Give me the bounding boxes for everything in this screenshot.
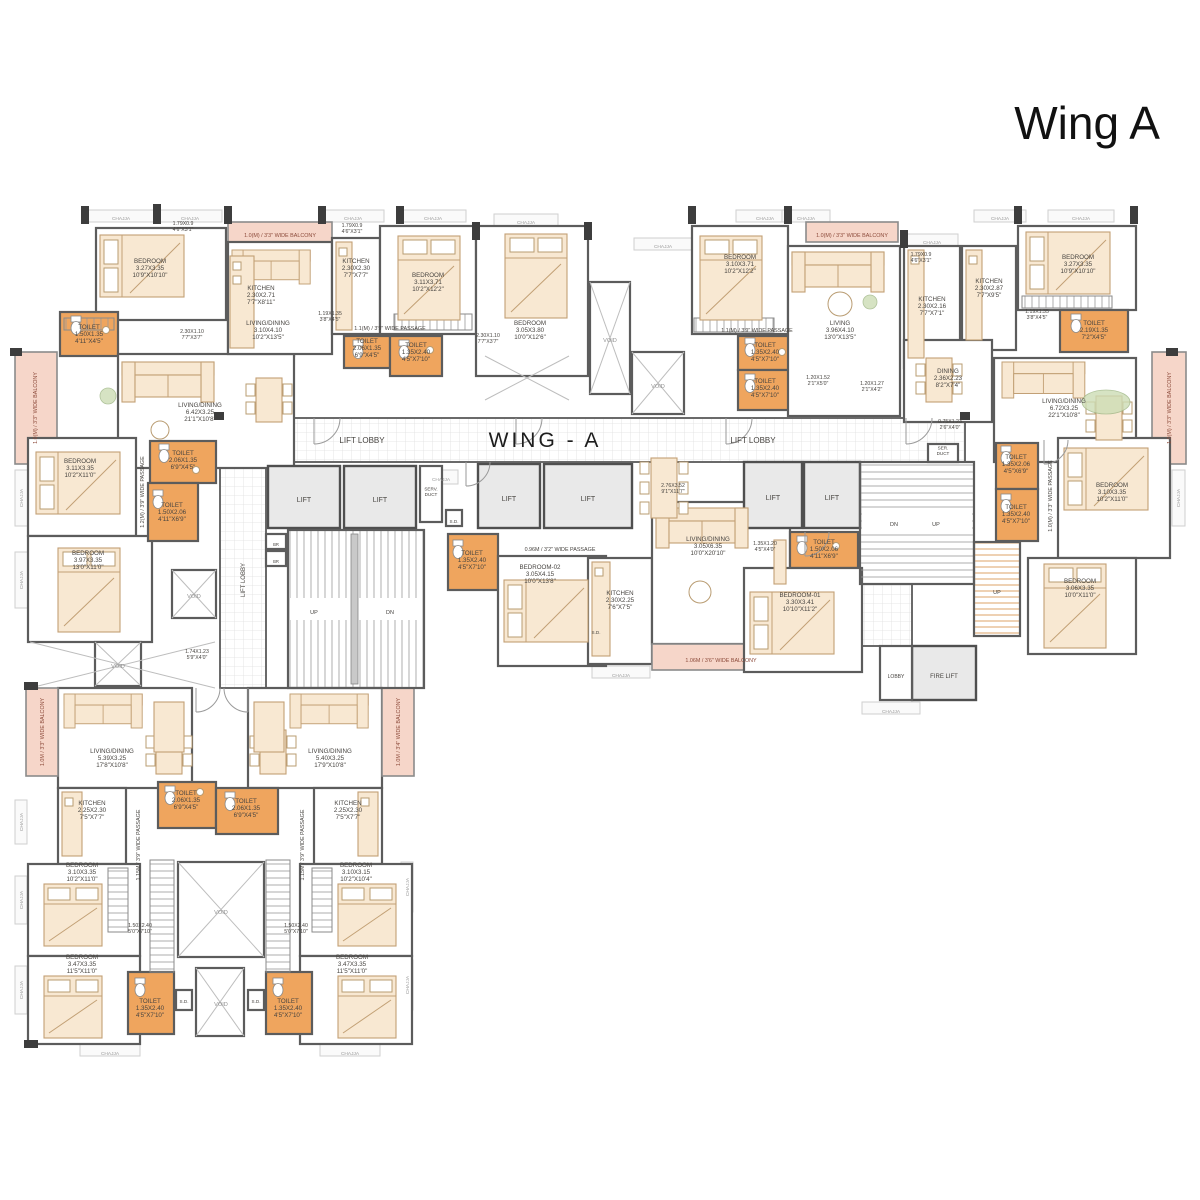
plan-label: TOILET1.35X2.404'5"X7'10"	[402, 342, 431, 363]
plan-label: BEDROOM3.10X3.3510'2"X11'0"	[1096, 482, 1128, 503]
plan-label: VOID	[111, 664, 125, 670]
plan-label: CHAJJA	[882, 709, 901, 715]
plan-label: TOILET1.35X2.404'5"X7'10"	[136, 998, 165, 1019]
plan-label: DN	[386, 610, 394, 616]
plan-label: TOILET2.06X1.356'9"X4'5"	[353, 338, 382, 359]
plan-label: CHAJJA	[405, 975, 411, 994]
plan-label: BEDROOM3.97X3.3513'0"X11'0"	[72, 550, 104, 571]
plan-label: BEDROOM3.47X3.3511'5"X11'0"	[66, 954, 98, 975]
plan-label: CHAJJA	[405, 877, 411, 896]
plan-label: S.D.	[592, 630, 601, 635]
plan-label: BEDROOM3.11X3.7110'2"X12'2"	[412, 272, 444, 293]
plan-label: CHAJJA	[344, 216, 363, 222]
plan-label: 1.1(M) / 3'9" WIDE PASSAGE	[721, 328, 793, 334]
plan-label: 1.0(M) / 3'3" WIDE BALCONY	[244, 233, 316, 239]
plan-label: 0.75X1.232'6"X4'0"	[938, 419, 962, 431]
plan-label: TOILET2.06X1.356'9"X4'5"	[169, 450, 198, 471]
plan-label: 1.19X1.353'8"X4'5"	[1025, 309, 1049, 321]
plan-label: TOILET1.50X1.354'11"X4'5"	[75, 324, 104, 345]
plan-label: LIFT LOBBY	[241, 563, 247, 597]
plan-label: CHAJJA	[991, 216, 1010, 222]
plan-label: BR	[273, 559, 279, 564]
plan-label: CHAJJA	[101, 1051, 120, 1057]
plan-label: LIFT	[581, 496, 596, 503]
plan-label: CHAJJA	[341, 1051, 360, 1057]
plan-label: 2.30X1.107'7"X3'7"	[180, 329, 204, 341]
plan-label: CHAJJA	[923, 240, 942, 246]
plan-label: 1.0(M) / 3'3" WIDE BALCONY	[816, 233, 888, 239]
plan-label: 1.79X0.94'6"X3'1"	[911, 252, 932, 264]
plan-label: 1.0M / 3'3" WIDE BALCONY	[40, 697, 46, 766]
plan-label: BEDROOM3.06X3.3510'0"X11'0"	[1064, 578, 1096, 599]
plan-label: 1.19X1.353'8"X4'5"	[318, 311, 342, 323]
plan-label: 1.79X0.94'6"X3'1"	[173, 221, 194, 233]
plan-label: TOILET1.35X2.404'5"X7'10"	[751, 342, 780, 363]
plan-label: 2.30X1.107'7"X3'7"	[476, 333, 500, 345]
plan-label: CHAJJA	[612, 673, 631, 679]
plan-label: 1.1(M) / 3'9" WIDE PASSAGE	[354, 326, 426, 332]
plan-label: LOBBY	[888, 674, 905, 680]
plan-label: 1.20X1.272'1"X4'2"	[860, 381, 884, 393]
plan-label: TOILET1.35X2.404'5"X7'10"	[458, 550, 487, 571]
plan-label: DINING2.36X2.238'2"X7'4"	[934, 368, 963, 389]
plan-label: TOILET2.19X1.357'2"X4'5"	[1080, 320, 1109, 341]
plan-label: VOID	[214, 910, 228, 916]
plan-label: 1.79X0.94'6"X3'1"	[342, 223, 363, 235]
plan-label: CHAJJA	[432, 477, 451, 483]
plan-label: BEDROOM3.47X3.3511'5"X11'0"	[336, 954, 368, 975]
plan-label: LIFT	[825, 495, 840, 502]
plan-label: S.D.	[450, 519, 459, 524]
plan-label: TOILET1.50X2.064'11"X6'9"	[158, 502, 187, 523]
plan-label: 1.15M / 3'9" WIDE PASSAGE	[136, 809, 142, 880]
floor-plan-drawing: WING - ALIFT LOBBYLIFT LOBBYLIFT LOBBYLI…	[0, 0, 1200, 1200]
plan-label: TOILET1.35X2.404'5"X7'10"	[751, 378, 780, 399]
plan-label: TOILET1.35X2.404'5"X7'10"	[274, 998, 303, 1019]
plan-label: LIFT	[297, 497, 312, 504]
plan-label: BEDROOM3.10X3.1510'2"X10'4"	[340, 862, 372, 883]
plan-label: 2.76X3.529'1"X11'7"	[661, 483, 685, 495]
plan-label: BEDROOM3.05X3.8010'0"X12'6"	[514, 320, 546, 341]
plan-label: BR	[273, 542, 279, 547]
plan-label: KITCHEN2.30X2.257'6"X7'5"	[606, 590, 635, 611]
plan-label: LIFT	[373, 497, 388, 504]
plan-label: BEDROOM3.27X3.3510'9"X10'10"	[1061, 254, 1096, 275]
plan-label: UP	[993, 590, 1001, 596]
plan-label: CHAJJA	[654, 244, 673, 250]
plan-label: SERV.DUCT	[424, 486, 437, 497]
plan-label: LIFT LOBBY	[730, 436, 776, 445]
plan-label: KITCHEN2.30X2.167'7"X7'1"	[918, 296, 947, 317]
plan-label: S.D.	[252, 999, 261, 1004]
plan-label: TOILET1.50X2.064'11"X6'9"	[810, 539, 839, 560]
plan-label: CHAJJA	[19, 812, 25, 831]
plan-label: LIFT LOBBY	[339, 436, 385, 445]
plan-label: CHAJJA	[797, 216, 816, 222]
plan-label: CHAJJA	[181, 216, 200, 222]
plan-label: CHAJJA	[19, 488, 25, 507]
plan-label: TOILET1.35X2.064'5"X6'9"	[1002, 454, 1031, 475]
plan-label: CHAJJA	[19, 570, 25, 589]
plan-label: VOID	[651, 384, 665, 390]
plan-label: CHAJJA	[424, 216, 443, 222]
plan-label: FIRE LIFT	[930, 674, 958, 680]
plan-label: CHAJJA	[1072, 216, 1091, 222]
plan-label: 1.15M / 3'9" WIDE PASSAGE	[300, 809, 306, 880]
plan-label: VOID	[603, 338, 617, 344]
plan-label: 1.50X2.405'0"X7'10"	[128, 923, 152, 935]
floor-plan-page: Wing A	[0, 0, 1200, 1200]
plan-label: LIFT	[766, 495, 781, 502]
plan-label: S.D.	[180, 999, 189, 1004]
plan-label: TOILET2.06X1.356'9"X4'5"	[232, 798, 261, 819]
plan-label: CHAJJA	[517, 220, 536, 226]
plan-label: TOILET2.06X1.356'9"X4'5"	[172, 790, 201, 811]
plan-label: 1.0(M) / 3'3" WIDE BALCONY	[33, 372, 39, 444]
plan-label: 1.0(M) / 3'3" WIDE PASSAGE	[1048, 460, 1054, 532]
plan-label: 1.35X1.204'5"X4'0"	[753, 541, 777, 553]
plan-label: BEDROOM3.27X3.3510'9"X10'10"	[133, 258, 168, 279]
plan-label: UP	[932, 522, 940, 528]
plan-label: 1.0M / 3'4" WIDE BALCONY	[396, 697, 402, 766]
plan-label: 0.96M / 3'2" WIDE PASSAGE	[525, 547, 596, 553]
plan-label: LIFT	[502, 496, 517, 503]
plan-label: VOID	[214, 1002, 228, 1008]
plan-label: 1.06M / 3'6" WIDE BALCONY	[685, 658, 757, 664]
plan-label: 1.74X1.235'9"X4'0"	[185, 649, 209, 661]
plan-label: UP	[310, 610, 318, 616]
plan-label: BEDROOM3.10X3.3510'2"X11'0"	[66, 862, 98, 883]
plan-label: CHAJJA	[112, 216, 131, 222]
plan-label: KITCHEN2.30X2.717'7"X8'11"	[247, 285, 276, 306]
plan-label: SER.DUCT	[937, 445, 950, 456]
plan-label: TOILET1.35X2.404'5"X7'10"	[1002, 504, 1031, 525]
plan-label: KITCHEN2.25X2.307'5"X7'7"	[334, 800, 363, 821]
plan-label: 1.20X1.522'1"X5'0"	[806, 375, 830, 387]
plan-label: BEDROOM3.11X3.3510'2"X11'0"	[64, 458, 96, 479]
wing-a-label: WING - A	[489, 429, 602, 452]
plan-label: CHAJJA	[756, 216, 775, 222]
plan-label: 1.50X2.405'0"X7'10"	[284, 923, 308, 935]
plan-label: KITCHEN2.25X2.307'5"X7'7"	[78, 800, 107, 821]
plan-label: CHAJJA	[19, 890, 25, 909]
plan-label: 1.0(M) / 3'3" WIDE BALCONY	[1167, 372, 1173, 444]
plan-label: CHAJJA	[19, 980, 25, 999]
plan-label: BEDROOM3.10X3.7110'2"X12'2"	[724, 254, 756, 275]
plan-label: DN	[890, 522, 898, 528]
plan-label: KITCHEN2.30X2.307'7"X7'7"	[342, 258, 371, 279]
plan-label: KITCHEN2.30X2.877'7"X9'5"	[975, 278, 1004, 299]
plan-label: CHAJJA	[1176, 488, 1182, 507]
plan-label: 1.2(M) / 3'9" WIDE PASSAGE	[140, 456, 146, 528]
plan-label: VOID	[187, 594, 201, 600]
